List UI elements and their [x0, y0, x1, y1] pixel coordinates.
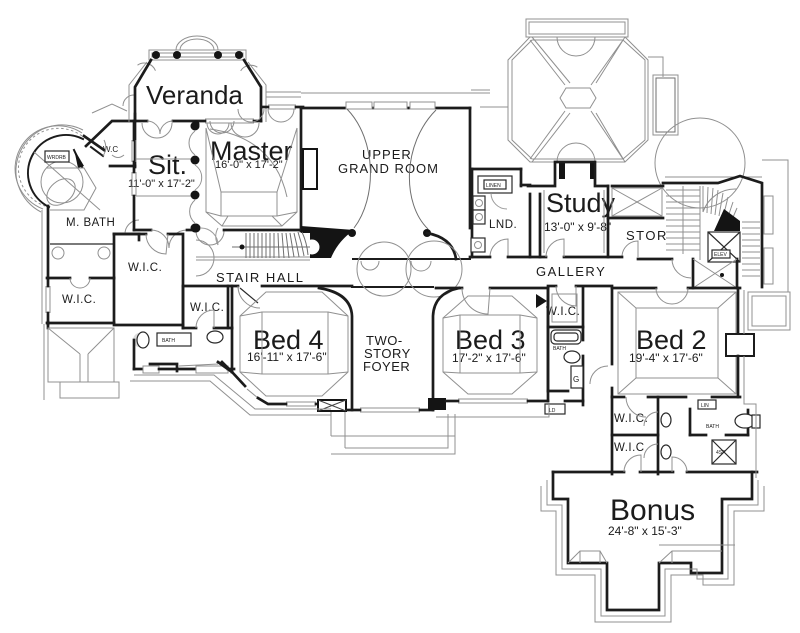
svg-text:STOR: STOR [626, 228, 668, 243]
svg-text:Study: Study [546, 188, 616, 218]
svg-text:19'-4" x 17'-6": 19'-4" x 17'-6" [629, 351, 703, 365]
svg-text:4SP: 4SP [716, 450, 726, 456]
svg-text:LND.: LND. [489, 219, 517, 231]
svg-text:W.I.C.: W.I.C. [62, 294, 96, 306]
svg-text:GALLERY: GALLERY [536, 264, 606, 279]
svg-text:11'-0" x 17'-2": 11'-0" x 17'-2" [128, 178, 195, 190]
svg-text:ELEV: ELEV [714, 252, 727, 258]
svg-text:BATH: BATH [706, 424, 719, 430]
svg-text:LINEN: LINEN [486, 183, 501, 189]
svg-text:BATH: BATH [162, 338, 175, 344]
svg-text:13'-0" x 9'-8": 13'-0" x 9'-8" [544, 220, 611, 234]
svg-text:W.I.C: W.I.C [614, 442, 645, 454]
svg-text:FOYER: FOYER [363, 359, 410, 374]
svg-text:WRDRB: WRDRB [47, 155, 67, 161]
svg-text:Bonus: Bonus [610, 494, 695, 527]
svg-text:G: G [573, 375, 579, 384]
svg-text:M. BATH: M. BATH [66, 217, 115, 229]
svg-text:W.I.C.: W.I.C. [190, 302, 224, 314]
svg-text:W.I.C.: W.I.C. [546, 306, 580, 318]
svg-text:Sit.: Sit. [148, 150, 187, 180]
svg-text:24'-8" x 15'-3": 24'-8" x 15'-3" [608, 524, 682, 538]
svg-text:GRAND ROOM: GRAND ROOM [338, 161, 439, 176]
svg-text:16'-0" x 17'-2": 16'-0" x 17'-2" [215, 159, 283, 171]
svg-text:LD: LD [549, 408, 556, 414]
svg-text:W.I.C.: W.I.C. [614, 413, 648, 425]
svg-text:STAIR HALL: STAIR HALL [216, 270, 304, 285]
svg-text:LIN: LIN [701, 403, 709, 409]
svg-text:W.I.C.: W.I.C. [128, 262, 162, 274]
svg-text:BATH: BATH [553, 346, 566, 352]
svg-text:Veranda: Veranda [146, 80, 243, 110]
svg-text:17'-2" x 17'-6": 17'-2" x 17'-6" [452, 351, 526, 365]
svg-text:16'-11" x 17'-6": 16'-11" x 17'-6" [247, 350, 327, 364]
